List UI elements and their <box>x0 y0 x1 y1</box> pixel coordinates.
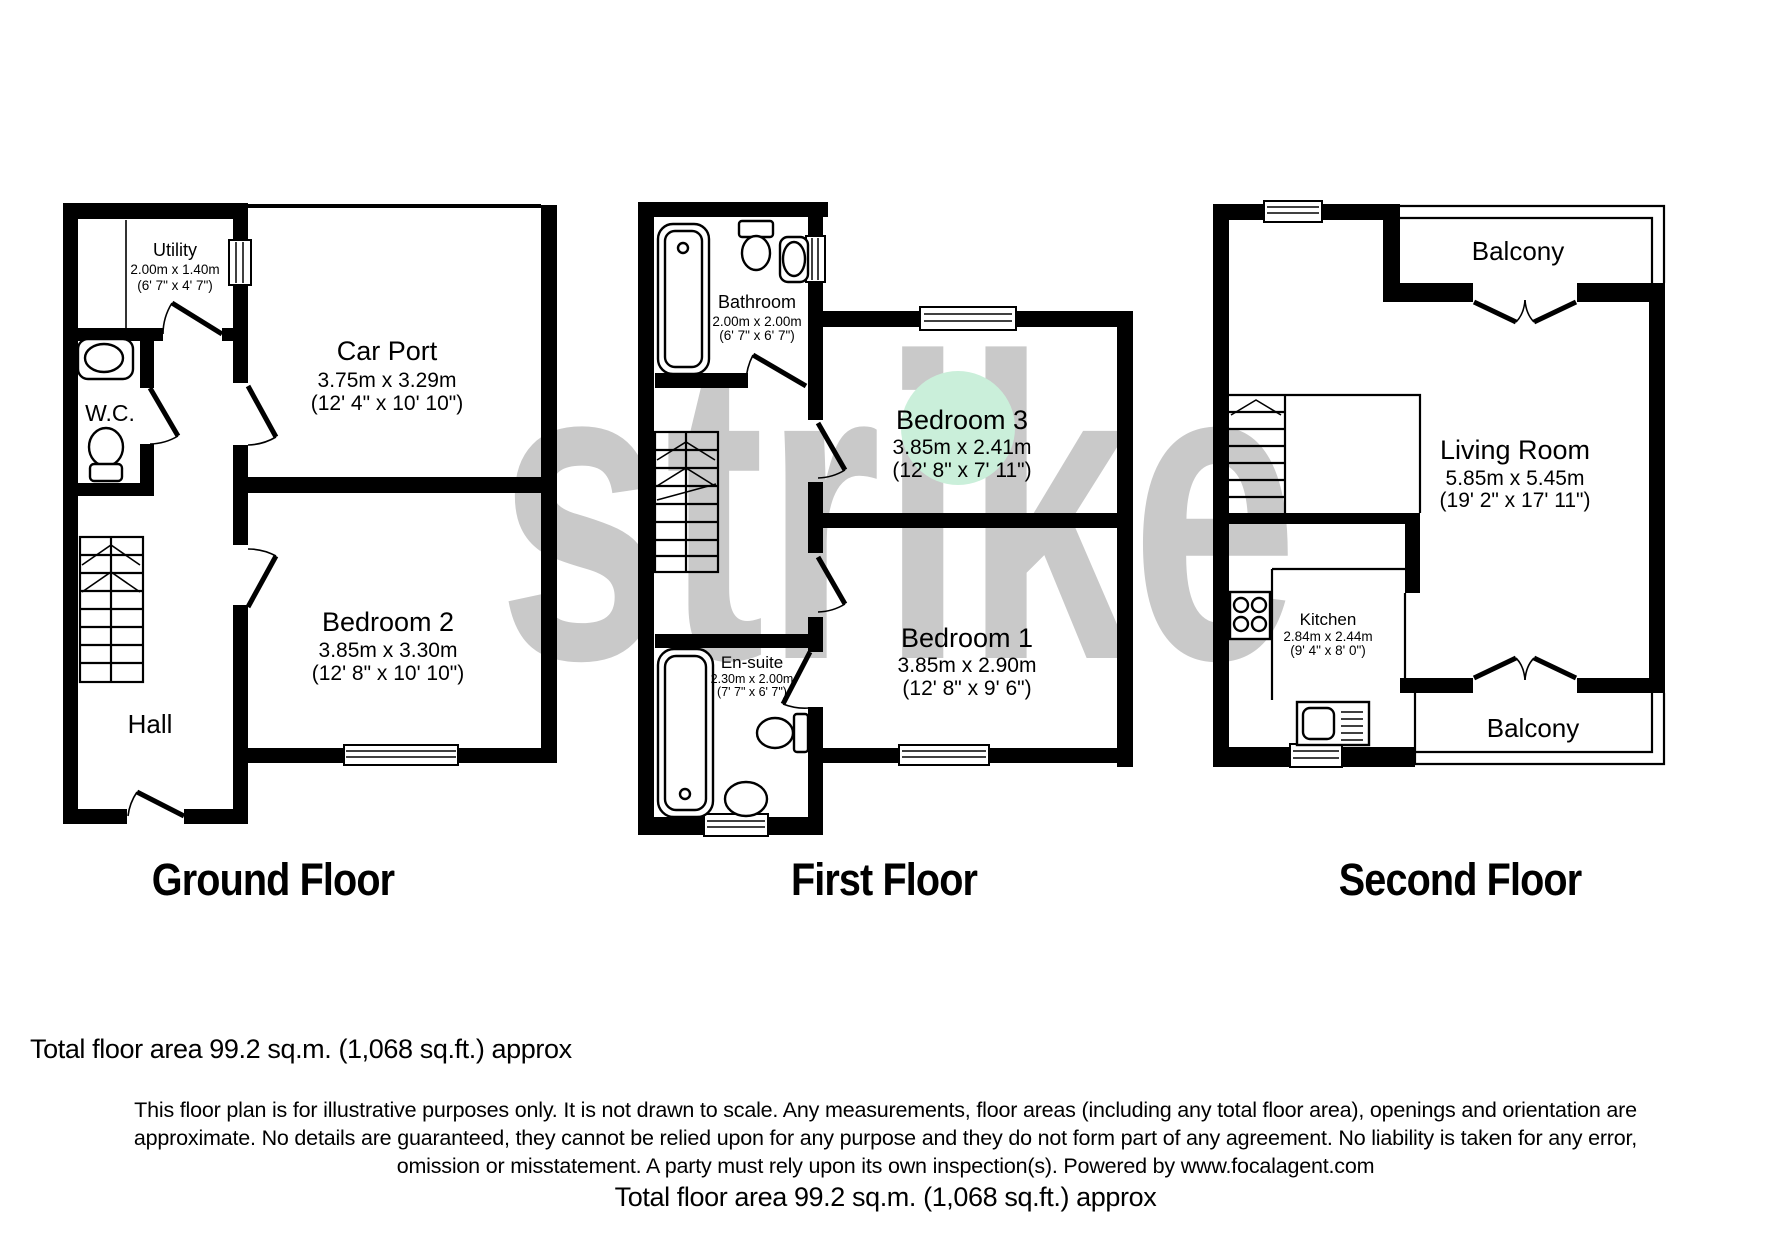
room-size-m: 2.30m x 2.00m <box>711 672 794 686</box>
ground-floor-title: Ground Floor <box>152 854 394 906</box>
bedroom2-door <box>248 549 276 607</box>
room-size-ft: (6' 7" x 6' 7") <box>719 328 795 343</box>
room-label-bedroom2: Bedroom 2 3.85m x 3.30m (12' 8" x 10' 10… <box>312 607 465 685</box>
bathroom-door <box>746 355 806 386</box>
room-name: Bedroom 3 <box>896 405 1028 435</box>
room-label-bedroom1: Bedroom 1 3.85m x 2.90m (12' 8" x 9' 6") <box>898 623 1037 700</box>
kitchen-sink-icon <box>1297 702 1369 745</box>
wc-toilet-icon <box>89 428 123 481</box>
kitchen-window <box>1290 744 1342 767</box>
room-name: Bedroom 1 <box>901 623 1033 653</box>
room-size-ft: (12' 8" x 7' 11") <box>892 459 1031 482</box>
bedroom3-door <box>818 423 845 478</box>
room-size-m: 5.85m x 5.45m <box>1446 467 1585 490</box>
balcony-bottom-french-doors <box>1474 658 1576 680</box>
room-label-hall: Hall <box>128 709 173 739</box>
bedroom1-door <box>818 557 845 612</box>
room-label-living-room: Living Room 5.85m x 5.45m (19' 2" x 17' … <box>1440 435 1591 512</box>
room-size-m: 2.00m x 1.40m <box>130 262 219 277</box>
first-floor-title: First Floor <box>791 854 977 906</box>
room-size-m: 3.75m x 3.29m <box>318 369 457 392</box>
disclaimer-line-3: omission or misstatement. A party must r… <box>0 1152 1771 1180</box>
room-size-m: 3.85m x 2.90m <box>898 654 1037 677</box>
wc-sink-icon <box>78 339 133 379</box>
second-floor-title: Second Floor <box>1339 854 1581 906</box>
room-size-m: 3.85m x 3.30m <box>319 639 458 662</box>
stairs-icon <box>655 432 718 572</box>
room-name: Bedroom 2 <box>322 607 454 637</box>
bath-icon <box>658 224 709 374</box>
stairs-icon <box>80 537 143 682</box>
hob-icon <box>1230 592 1270 639</box>
room-name: Balcony <box>1472 236 1565 266</box>
room-name: Bathroom <box>718 292 796 312</box>
room-name: Living Room <box>1440 435 1590 465</box>
first-floor-plan: Bathroom 2.00m x 2.00m (6' 7" x 6' 7") B… <box>638 202 1133 836</box>
room-label-balcony-top: Balcony <box>1472 236 1565 266</box>
room-size-ft: (12' 4" x 10' 10") <box>311 392 464 415</box>
room-size-ft: (9' 4" x 8' 0") <box>1290 643 1366 658</box>
room-label-bathroom: Bathroom 2.00m x 2.00m (6' 7" x 6' 7") <box>712 292 801 343</box>
total-floor-area-bottom: Total floor area 99.2 sq.m. (1,068 sq.ft… <box>0 1182 1771 1213</box>
wc-door <box>150 388 178 444</box>
ensuite-window <box>704 814 768 836</box>
room-size-m: 3.85m x 2.41m <box>893 436 1032 459</box>
room-size-m: 2.00m x 2.00m <box>712 314 801 329</box>
room-size-ft: (12' 8" x 9' 6") <box>902 677 1031 700</box>
room-name: Kitchen <box>1300 610 1357 629</box>
room-size-ft: (6' 7" x 4' 7") <box>137 278 213 293</box>
disclaimer-text: This floor plan is for illustrative purp… <box>0 1096 1771 1180</box>
bedroom3-window <box>920 307 1016 330</box>
utility-window <box>229 240 251 285</box>
sink-icon <box>780 237 808 282</box>
stairs-icon <box>1228 395 1420 513</box>
room-size-m: 2.84m x 2.44m <box>1283 629 1372 644</box>
room-size-ft: (19' 2" x 17' 11") <box>1440 489 1591 512</box>
second-floor-walls <box>1213 204 1665 767</box>
total-floor-area-top: Total floor area 99.2 sq.m. (1,068 sq.ft… <box>30 1034 572 1065</box>
balcony-top-french-doors <box>1474 300 1576 322</box>
bedroom2-window <box>344 745 458 765</box>
floorplan-page: strike <box>0 0 1771 1239</box>
ensuite-toilet-icon <box>757 714 808 752</box>
utility-door <box>163 303 222 334</box>
room-name: Utility <box>153 240 197 260</box>
room-label-bedroom3: Bedroom 3 3.85m x 2.41m (12' 8" x 7' 11"… <box>892 405 1031 482</box>
window-top-left <box>1264 201 1322 222</box>
room-name: W.C. <box>85 400 135 426</box>
ensuite-bath-icon <box>658 649 713 817</box>
disclaimer-line-2: approximate. No details are guaranteed, … <box>0 1124 1771 1152</box>
bedroom1-window <box>899 745 989 765</box>
carport-door <box>248 386 276 445</box>
room-name: Balcony <box>1487 713 1580 743</box>
room-label-car-port: Car Port 3.75m x 3.29m (12' 4" x 10' 10"… <box>311 336 464 415</box>
room-size-ft: (12' 8" x 10' 10") <box>312 662 465 685</box>
room-label-balcony-bottom: Balcony <box>1487 713 1580 743</box>
ground-floor-plan: Utility 2.00m x 1.40m (6' 7" x 4' 7") Ca… <box>63 203 557 824</box>
ensuite-sink-icon <box>725 782 767 816</box>
room-size-ft: (7' 7" x 6' 7") <box>717 685 787 699</box>
room-label-ensuite: En-suite 2.30m x 2.00m (7' 7" x 6' 7") <box>711 653 794 699</box>
toilet-icon <box>739 221 773 270</box>
room-name: Hall <box>128 709 173 739</box>
room-label-utility: Utility 2.00m x 1.40m (6' 7" x 4' 7") <box>130 240 219 293</box>
room-name: Car Port <box>337 336 438 366</box>
room-label-kitchen: Kitchen 2.84m x 2.44m (9' 4" x 8' 0") <box>1283 610 1372 658</box>
second-floor-plan: Balcony Living Room 5.85m x 5.45m (19' 2… <box>1213 201 1665 767</box>
front-door <box>128 792 184 816</box>
room-name: En-suite <box>721 653 783 672</box>
room-label-wc: W.C. <box>85 400 135 426</box>
disclaimer-line-1: This floor plan is for illustrative purp… <box>0 1096 1771 1124</box>
